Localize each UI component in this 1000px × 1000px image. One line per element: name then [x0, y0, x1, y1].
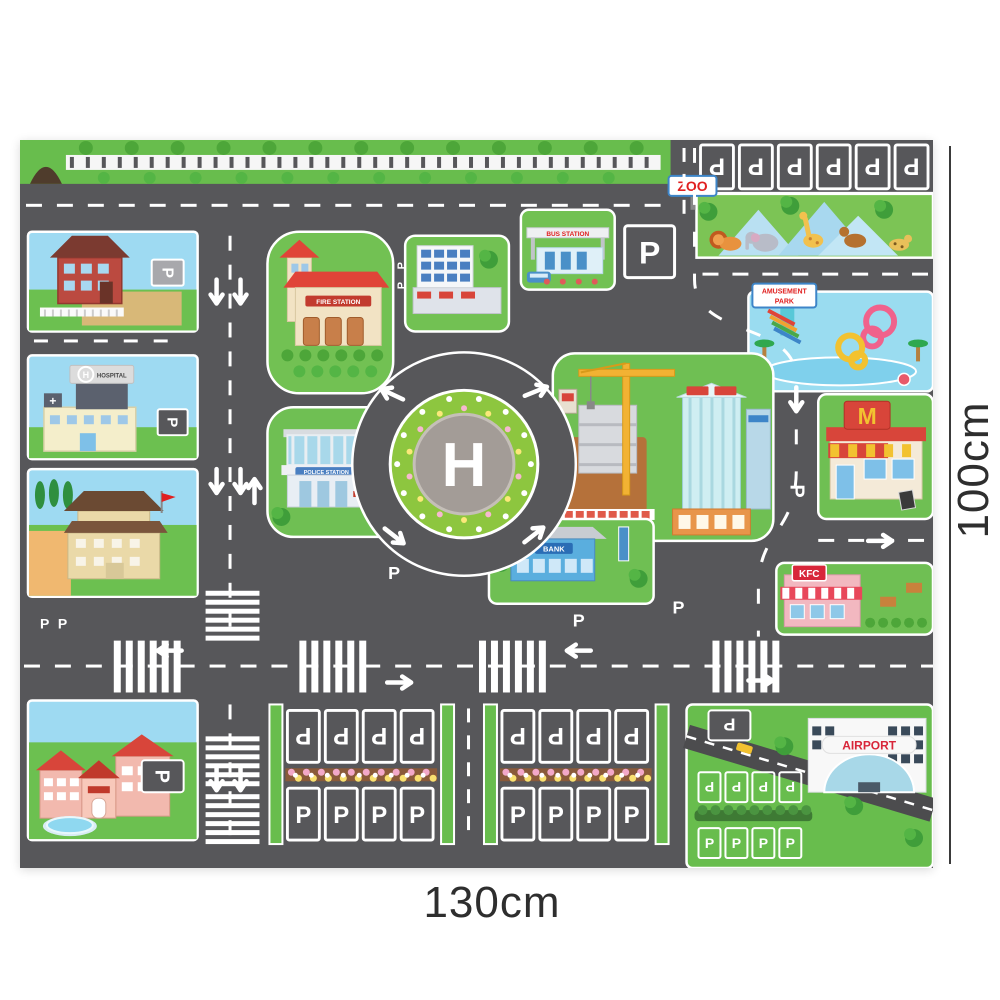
svg-text:P: P: [510, 802, 526, 829]
svg-text:P: P: [164, 417, 181, 427]
svg-text:P: P: [333, 802, 349, 829]
fire-station-block: FIRE STATION: [267, 232, 393, 394]
svg-text:P: P: [787, 152, 803, 179]
width-dimension-label: 130cm: [423, 878, 560, 928]
mcdonalds-arches-icon: M: [844, 401, 890, 429]
amusement-park: AMUSEMENT PARK: [748, 284, 933, 392]
svg-text:P: P: [624, 802, 640, 829]
svg-text:P: P: [333, 722, 349, 749]
mcdonalds-block: M: [818, 394, 933, 519]
pool: [764, 357, 916, 385]
fire-station-sign-label: FIRE STATION: [316, 299, 360, 306]
svg-text:P: P: [705, 835, 714, 851]
zoo-sign-label: ZOO: [677, 178, 707, 194]
svg-text:+: +: [49, 394, 56, 408]
road-parking-mark: P: [396, 262, 408, 269]
zoo-scene: [697, 194, 933, 258]
fence: [66, 155, 661, 170]
picnic-table: [880, 597, 896, 607]
hospital-sign-label: HOSPITAL: [97, 373, 127, 379]
road-parking-mark: P: [573, 611, 585, 631]
play-mat-art: PPPPPP: [20, 140, 933, 868]
svg-text:P: P: [295, 722, 311, 749]
road-parking-mark: P: [785, 484, 807, 497]
svg-text:P: P: [295, 802, 311, 829]
svg-text:AMUSEMENT: AMUSEMENT: [762, 289, 808, 296]
svg-text:P: P: [548, 722, 564, 749]
kfc-block: KFC: [776, 563, 933, 635]
red-house: [50, 236, 130, 304]
svg-text:P: P: [759, 779, 768, 795]
svg-text:P: P: [371, 802, 387, 829]
svg-text:P: P: [732, 835, 741, 851]
svg-text:P: P: [159, 267, 176, 278]
svg-text:P: P: [409, 802, 425, 829]
svg-text:M: M: [858, 403, 877, 429]
parking-square: P: [625, 226, 675, 278]
svg-text:P: P: [732, 779, 741, 795]
airport-block: P AIRPORT PPPP PPPP: [687, 704, 933, 868]
height-dimension-label: 100cm: [949, 401, 999, 538]
construction-tower-block: [553, 353, 774, 540]
airport-parking-pad: P: [708, 710, 750, 740]
svg-text:P: P: [586, 802, 602, 829]
svg-text:P: P: [759, 835, 768, 851]
svg-text:P: P: [371, 722, 387, 749]
amusement-park-sign: AMUSEMENT PARK: [752, 284, 816, 308]
play-mat-image: PPPPPP: [20, 140, 933, 868]
svg-text:P: P: [151, 770, 173, 783]
product-photo: PPPPPP: [0, 0, 1000, 1000]
helipad-roundabout: H: [352, 352, 576, 575]
svg-text:P: P: [748, 152, 764, 179]
umbrella-icon: [898, 373, 910, 385]
airport-sign-label: AIRPORT: [842, 738, 897, 752]
svg-text:P: P: [548, 802, 564, 829]
house-parking-pad: P: [152, 260, 184, 286]
menu-board: [899, 490, 916, 510]
svg-text:P: P: [786, 835, 795, 851]
road-parking-mark: P: [388, 563, 400, 583]
road-parking-mark: P: [58, 616, 67, 632]
grass-strip: [20, 140, 671, 184]
school-sign: [88, 786, 110, 793]
kfc-sign-label: KFC: [799, 569, 820, 580]
svg-text:P: P: [409, 722, 425, 749]
svg-text:PARK: PARK: [775, 299, 794, 306]
svg-text:H: H: [83, 370, 89, 380]
svg-text:P: P: [705, 779, 714, 795]
road-parking-mark: P: [396, 282, 408, 289]
svg-text:P: P: [786, 779, 795, 795]
bank-pole-sign: [619, 527, 629, 561]
pool: [47, 817, 93, 833]
svg-text:P: P: [865, 152, 881, 179]
bus-station-block: BUS STATION: [521, 210, 615, 290]
svg-text:P: P: [904, 152, 920, 179]
hospital-block: H HOSPITAL + P: [28, 355, 198, 459]
svg-text:P: P: [723, 714, 735, 734]
bank-sign-label: BANK: [543, 544, 565, 553]
airport-building: AIRPORT: [808, 718, 926, 792]
helipad-letter: H: [442, 431, 487, 500]
svg-text:P: P: [586, 722, 602, 749]
office-block: [405, 236, 509, 332]
road-parking-mark: P: [673, 598, 685, 618]
bus-station-sign-label: BUS STATION: [546, 231, 589, 238]
svg-text:P: P: [624, 722, 640, 749]
mansion-block: [28, 469, 198, 597]
red-house-block: P: [28, 232, 198, 332]
school-block: P: [28, 700, 198, 840]
hospital-parking-pad: P: [158, 409, 188, 435]
picnic-table: [906, 583, 922, 593]
svg-text:P: P: [826, 152, 842, 179]
svg-text:P: P: [639, 235, 660, 271]
svg-text:P: P: [510, 722, 526, 749]
road-parking-mark: P: [40, 616, 49, 632]
